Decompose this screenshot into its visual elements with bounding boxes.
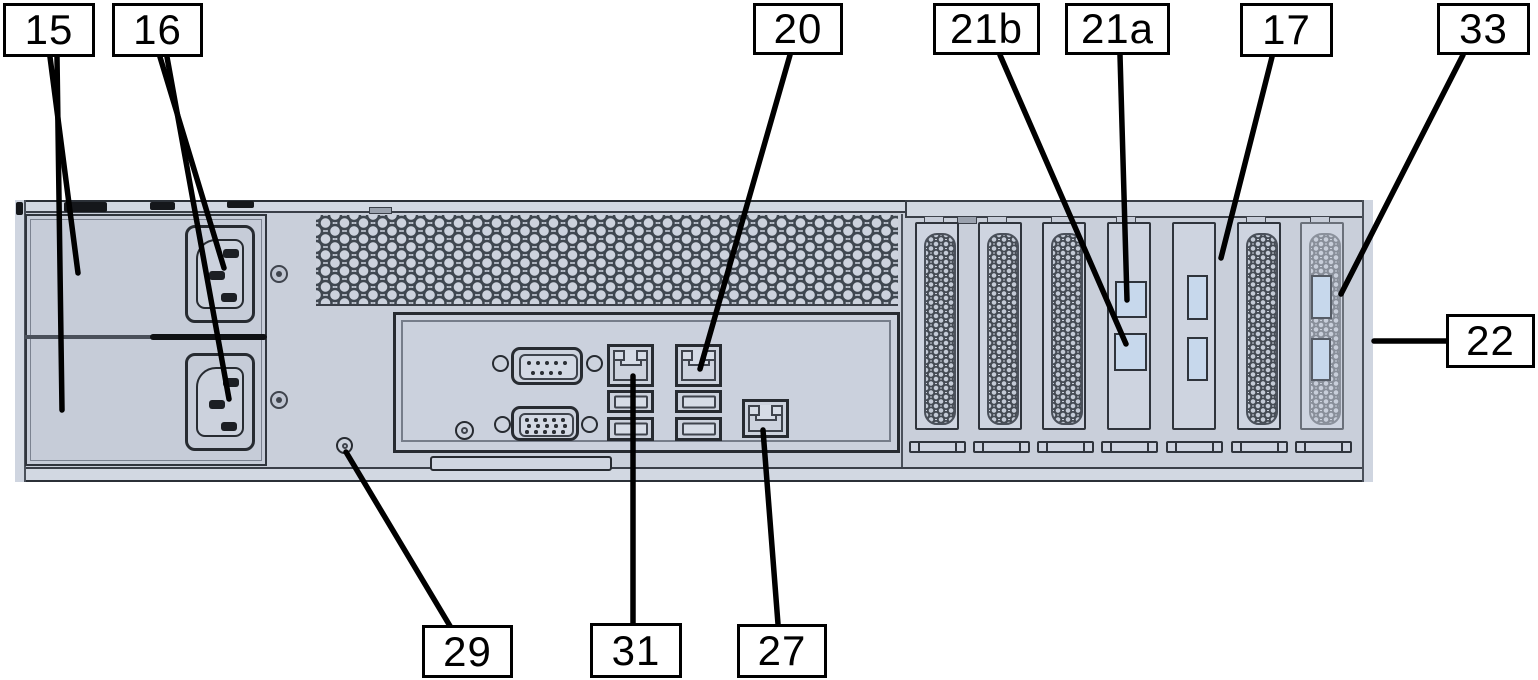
callout-29: 29 — [422, 625, 513, 678]
leader-line-15 — [57, 57, 62, 410]
figure-server-rear-view: 15162021b21a173322293127 — [0, 0, 1538, 680]
callout-31: 31 — [590, 623, 682, 678]
leader-line-15 — [50, 57, 78, 273]
callout-15: 15 — [3, 3, 95, 57]
callout-21a: 21a — [1065, 3, 1170, 55]
leader-line-16 — [160, 57, 224, 268]
callout-17: 17 — [1240, 3, 1333, 57]
callout-33: 33 — [1437, 3, 1530, 55]
leader-line-33 — [1341, 55, 1463, 294]
leader-line-29 — [346, 452, 450, 626]
leader-lines — [0, 0, 1538, 680]
leader-line-20 — [700, 55, 790, 369]
leader-line-21a — [1120, 55, 1127, 300]
leader-line-27 — [763, 430, 778, 624]
leader-line-21b — [1000, 55, 1126, 344]
callout-20: 20 — [753, 3, 843, 55]
callout-22: 22 — [1446, 314, 1535, 368]
leader-line-17 — [1221, 57, 1272, 258]
callout-27: 27 — [737, 624, 827, 678]
callout-21b: 21b — [933, 3, 1040, 55]
leader-line-16 — [167, 57, 229, 399]
callout-16: 16 — [112, 3, 203, 57]
